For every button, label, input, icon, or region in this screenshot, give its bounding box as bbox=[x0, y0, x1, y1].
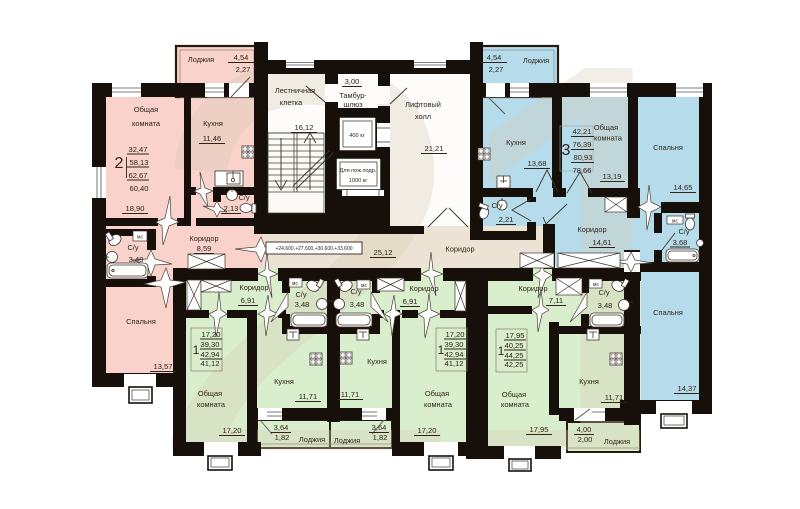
svg-text:3,64: 3,64 bbox=[274, 423, 289, 432]
svg-text:17,20: 17,20 bbox=[222, 426, 241, 435]
svg-text:4,00: 4,00 bbox=[577, 425, 592, 434]
svg-text:78,66: 78,66 bbox=[572, 166, 591, 175]
svg-text:С/у: С/у bbox=[598, 288, 609, 297]
svg-text:7,11: 7,11 bbox=[549, 296, 563, 305]
svg-text:Спальня: Спальня bbox=[653, 143, 683, 152]
svg-text:Кухня: Кухня bbox=[506, 138, 526, 147]
svg-text:42,94: 42,94 bbox=[200, 350, 219, 359]
svg-text:Кухня: Кухня bbox=[203, 119, 223, 128]
svg-text:комната: комната bbox=[594, 134, 623, 143]
svg-text:С/у: С/у bbox=[127, 243, 138, 252]
svg-text:+24.600,+27.600,+30.600,+33.60: +24.600,+27.600,+30.600,+33.600 bbox=[275, 246, 352, 252]
svg-text:3: 3 bbox=[562, 142, 571, 159]
svg-text:Коридор: Коридор bbox=[239, 283, 268, 292]
svg-text:мс: мс bbox=[137, 235, 143, 241]
svg-text:58,13: 58,13 bbox=[129, 158, 148, 167]
svg-text:14,65: 14,65 bbox=[673, 183, 692, 192]
svg-text:3,68: 3,68 bbox=[673, 238, 688, 247]
svg-text:Лестничная: Лестничная bbox=[275, 86, 315, 95]
svg-text:Спальня: Спальня bbox=[126, 317, 156, 326]
svg-text:6,91: 6,91 bbox=[241, 296, 256, 305]
svg-text:17,20: 17,20 bbox=[417, 426, 436, 435]
svg-text:3,48: 3,48 bbox=[598, 301, 613, 310]
svg-text:Коридор: Коридор bbox=[409, 284, 438, 293]
svg-text:80,93: 80,93 bbox=[573, 153, 592, 162]
svg-text:Лоджия: Лоджия bbox=[188, 55, 214, 64]
svg-text:Коридор: Коридор bbox=[445, 245, 474, 254]
svg-text:42,21: 42,21 bbox=[572, 127, 591, 136]
svg-text:41,12: 41,12 bbox=[200, 359, 219, 368]
svg-text:1,82: 1,82 bbox=[373, 433, 388, 442]
svg-text:11,71: 11,71 bbox=[299, 392, 317, 401]
svg-text:С/у: С/у bbox=[238, 193, 249, 202]
svg-text:16,12: 16,12 bbox=[294, 123, 313, 132]
svg-text:С/у: С/у bbox=[295, 290, 306, 299]
svg-text:400 кг: 400 кг bbox=[349, 133, 364, 139]
svg-text:13,19: 13,19 bbox=[602, 172, 621, 181]
svg-text:Лоджия: Лоджия bbox=[299, 435, 325, 444]
svg-text:25,12: 25,12 bbox=[373, 248, 392, 257]
svg-text:21,21: 21,21 bbox=[424, 144, 443, 153]
svg-text:4,54: 4,54 bbox=[234, 53, 249, 62]
svg-text:Коридор: Коридор bbox=[577, 225, 606, 234]
svg-text:комната: комната bbox=[197, 400, 226, 409]
svg-text:17,95: 17,95 bbox=[529, 425, 548, 434]
svg-text:Лоджия: Лоджия bbox=[523, 56, 549, 65]
svg-text:С/у: С/у bbox=[491, 201, 502, 210]
svg-text:мс: мс bbox=[593, 282, 599, 288]
svg-text:Лоджия: Лоджия bbox=[334, 436, 360, 445]
svg-text:Общая: Общая bbox=[198, 389, 222, 398]
svg-text:3,00: 3,00 bbox=[345, 77, 360, 86]
svg-text:2,27: 2,27 bbox=[236, 65, 251, 74]
svg-text:42,94: 42,94 bbox=[444, 350, 463, 359]
svg-text:42,25: 42,25 bbox=[504, 360, 523, 369]
svg-text:комната: комната bbox=[501, 400, 530, 409]
svg-text:3,48: 3,48 bbox=[129, 255, 144, 264]
svg-text:76,39: 76,39 bbox=[572, 140, 591, 149]
svg-text:60,40: 60,40 bbox=[129, 184, 148, 193]
svg-text:2,13: 2,13 bbox=[224, 204, 239, 213]
svg-text:6,91: 6,91 bbox=[403, 297, 418, 306]
svg-text:1000 кг: 1000 кг bbox=[349, 178, 368, 184]
svg-text:2,27: 2,27 bbox=[489, 65, 504, 74]
svg-text:3,48: 3,48 bbox=[295, 300, 310, 309]
svg-text:Для пож.подр.: Для пож.подр. bbox=[340, 168, 377, 174]
svg-text:3,64: 3,64 bbox=[372, 423, 387, 432]
svg-text:2,21: 2,21 bbox=[499, 215, 514, 224]
svg-text:С/у: С/у bbox=[678, 227, 689, 236]
svg-text:18,90: 18,90 bbox=[125, 204, 144, 213]
svg-text:Лифтовый: Лифтовый bbox=[405, 100, 441, 109]
svg-text:11,46: 11,46 bbox=[203, 134, 221, 143]
svg-text:3,48: 3,48 bbox=[350, 300, 365, 309]
svg-text:Коридор: Коридор bbox=[189, 234, 218, 243]
svg-text:мс: мс bbox=[361, 283, 367, 289]
svg-text:11,71: 11,71 bbox=[341, 390, 359, 399]
svg-text:8,59: 8,59 bbox=[197, 244, 212, 253]
svg-text:Кухня: Кухня bbox=[579, 377, 599, 386]
svg-text:Кухня: Кухня bbox=[274, 377, 294, 386]
svg-text:1: 1 bbox=[193, 343, 200, 357]
svg-text:комната: комната bbox=[132, 119, 161, 128]
svg-text:2,00: 2,00 bbox=[578, 435, 593, 444]
svg-text:14,61: 14,61 bbox=[592, 238, 611, 247]
svg-text:14,37: 14,37 bbox=[677, 384, 696, 393]
svg-text:11,71: 11,71 bbox=[605, 393, 623, 402]
svg-text:32,47: 32,47 bbox=[128, 145, 147, 154]
svg-text:Общая: Общая bbox=[502, 390, 526, 399]
svg-text:17,95: 17,95 bbox=[505, 331, 524, 340]
svg-text:Спальня: Спальня bbox=[653, 308, 683, 317]
svg-text:41,12: 41,12 bbox=[444, 359, 463, 368]
svg-text:Кухня: Кухня bbox=[367, 357, 387, 366]
svg-text:Общая: Общая bbox=[134, 105, 158, 114]
svg-text:клетка: клетка bbox=[280, 98, 303, 107]
svg-text:мс: мс bbox=[292, 281, 298, 287]
svg-text:4,54: 4,54 bbox=[487, 53, 502, 62]
svg-text:шлюз: шлюз bbox=[343, 100, 363, 109]
svg-text:Общая: Общая bbox=[425, 389, 449, 398]
svg-text:39,30: 39,30 bbox=[444, 340, 463, 349]
svg-text:Тамбур-: Тамбур- bbox=[339, 91, 367, 100]
svg-text:17,20: 17,20 bbox=[445, 330, 464, 339]
svg-text:комната: комната bbox=[424, 400, 453, 409]
svg-text:Общая: Общая bbox=[594, 123, 618, 132]
svg-text:Лоджия: Лоджия bbox=[604, 437, 630, 446]
svg-text:62,67: 62,67 bbox=[128, 171, 147, 180]
svg-text:1,82: 1,82 bbox=[275, 433, 290, 442]
svg-text:мс: мс bbox=[672, 219, 678, 225]
svg-text:13,68: 13,68 bbox=[527, 159, 546, 168]
svg-text:13,57: 13,57 bbox=[153, 362, 172, 371]
svg-text:40,25: 40,25 bbox=[504, 341, 523, 350]
svg-text:2: 2 bbox=[115, 155, 124, 172]
svg-text:Коридор: Коридор bbox=[518, 284, 547, 293]
svg-text:холл: холл bbox=[415, 112, 431, 121]
svg-text:44,25: 44,25 bbox=[504, 351, 523, 360]
svg-text:17,20: 17,20 bbox=[201, 330, 220, 339]
svg-text:39,30: 39,30 bbox=[200, 340, 219, 349]
